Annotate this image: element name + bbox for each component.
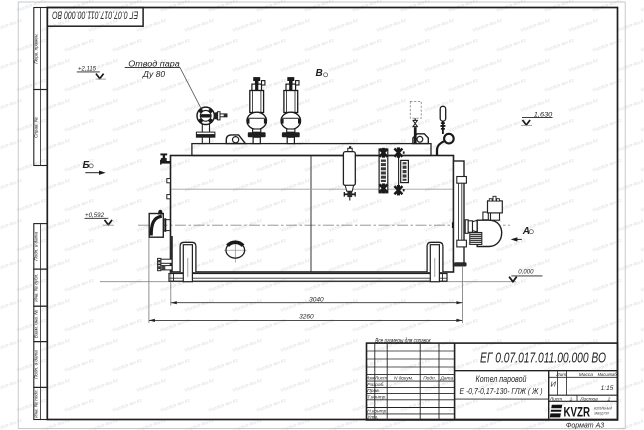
svg-text:Утв.: Утв. [367,415,378,421]
svg-text:Лист: Лист [549,396,562,402]
svg-text:Б: Б [83,160,90,171]
svg-text:А: А [522,226,530,237]
svg-text:В: В [316,68,323,79]
svg-text:КОТЕЛЬНЫЙ: КОТЕЛЬНЫЙ [594,407,612,411]
svg-text:Инв. № подл.: Инв. № подл. [34,389,39,418]
svg-text:Подп. и дата: Подп. и дата [34,350,39,379]
svg-text:Дата: Дата [439,376,453,382]
svg-text:Т.контр.: Т.контр. [367,395,386,401]
svg-text:Масштаб: Масштаб [598,372,617,378]
svg-text:ЕГ 0.07.017.011.00.000 ВО: ЕГ 0.07.017.011.00.000 ВО [480,350,606,367]
svg-text:Формат А3: Формат А3 [566,422,604,429]
svg-text:Ду 80: Ду 80 [142,69,165,79]
svg-text:1: 1 [570,396,573,402]
svg-text:Справ. №: Справ. № [34,117,39,138]
svg-text:ЗАВОД РЭП: ЗАВОД РЭП [594,412,609,416]
svg-text:KVZR: KVZR [564,404,591,419]
svg-text:И: И [551,380,557,389]
svg-text:3040: 3040 [309,296,324,303]
svg-text:Все размеры для справок: Все размеры для справок [375,339,431,345]
svg-text:3260: 3260 [299,314,314,321]
svg-text:Лист: Лист [374,376,387,382]
svg-text:N докум.: N докум. [394,376,413,382]
svg-text:Перв. примен.: Перв. примен. [34,33,39,64]
svg-text:Пров.: Пров. [367,388,380,394]
svg-text:Котел паровой: Котел паровой [476,374,527,384]
svg-text:Масса: Масса [579,372,594,378]
svg-text:Лит.: Лит. [555,372,567,378]
svg-text:1:15: 1:15 [601,385,614,392]
svg-text:Н.контр.: Н.контр. [367,409,387,415]
svg-text:Разраб.: Разраб. [367,382,384,388]
svg-text:0,000: 0,000 [518,269,534,276]
svg-text:2: 2 [607,396,611,402]
svg-text:Е -0,7-0,17-130- ГЛЖ ( Ж ): Е -0,7-0,17-130- ГЛЖ ( Ж ) [460,387,543,396]
svg-text:Отвод пара: Отвод пара [128,59,180,69]
svg-text:Листов: Листов [579,396,598,402]
svg-text:Инв. № дубл.: Инв. № дубл. [34,274,39,302]
svg-text:Взам. инв. №: Взам. инв. № [34,310,39,338]
svg-text:ЕГ 0.07.017.011.00.000 ВО: ЕГ 0.07.017.011.00.000 ВО [52,9,138,21]
svg-text:Подп.: Подп. [423,376,436,382]
svg-text:Подп. и дата: Подп. и дата [34,232,39,261]
